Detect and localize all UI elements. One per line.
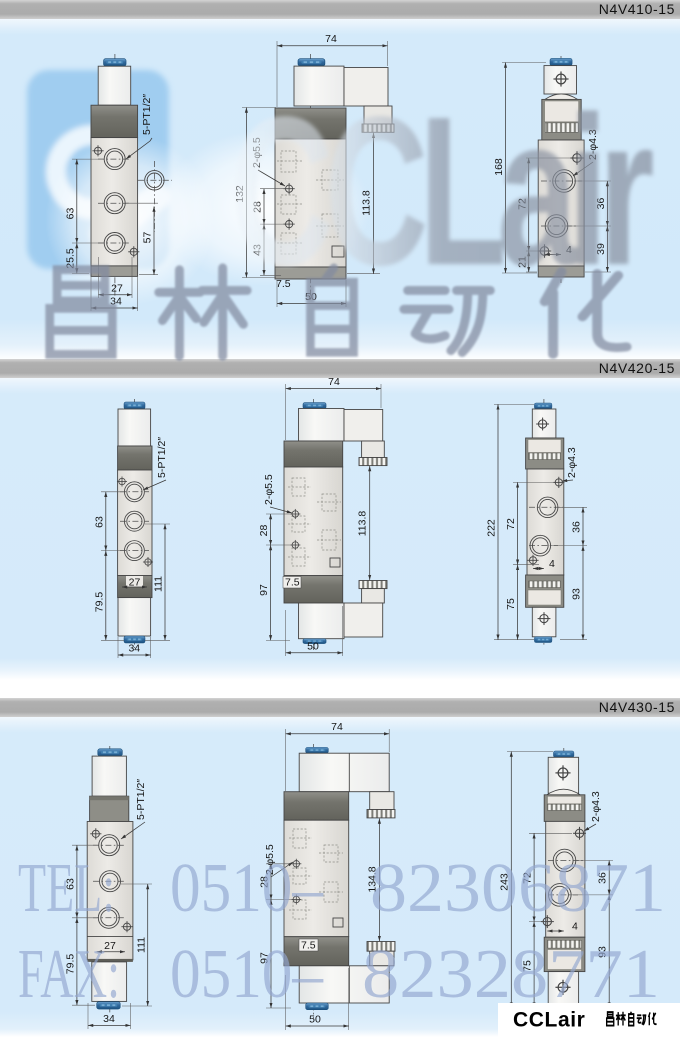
svg-text:74: 74 [331,721,343,733]
svg-text:74: 74 [325,33,337,45]
svg-text:93: 93 [571,588,583,600]
svg-text:72: 72 [505,518,517,530]
svg-text:34: 34 [103,1013,115,1025]
svg-text:111: 111 [135,937,147,953]
svg-text:50: 50 [309,1014,321,1026]
svg-text:63: 63 [94,516,106,528]
svg-text:7.5: 7.5 [285,577,300,589]
svg-text:0510–: 0510– [170,850,324,927]
svg-text:57: 57 [142,232,154,244]
svg-text:2-φ4.3: 2-φ4.3 [590,791,602,822]
svg-text:5-PT1/2″: 5-PT1/2″ [141,94,153,135]
svg-text:34: 34 [128,643,140,655]
svg-text:0510–: 0510– [170,936,324,1013]
svg-text:50: 50 [307,641,319,653]
svg-text:4: 4 [549,558,555,570]
svg-text:222: 222 [486,519,498,537]
svg-text:CCLair: CCLair [230,72,653,309]
svg-text:27: 27 [111,283,123,295]
svg-text:82306871: 82306871 [370,850,666,927]
svg-text:CCLair: CCLair [513,1009,585,1032]
svg-text:27: 27 [129,577,141,589]
svg-text:82328771: 82328771 [362,936,660,1013]
svg-text:2-φ4.3: 2-φ4.3 [566,447,578,478]
svg-text:74: 74 [328,376,340,388]
svg-text:5-PT1/2″: 5-PT1/2″ [135,779,147,820]
svg-text:FAX:: FAX: [18,936,120,1013]
svg-text:113.8: 113.8 [357,511,369,537]
svg-text:97: 97 [258,584,270,596]
svg-text:75: 75 [505,598,517,610]
svg-text:36: 36 [571,521,583,533]
svg-text:63: 63 [65,208,77,220]
svg-text:111: 111 [153,576,165,592]
svg-text:79.5: 79.5 [94,592,106,613]
svg-text:5-PT1/2″: 5-PT1/2″ [156,437,168,478]
svg-text:28: 28 [258,525,270,537]
svg-text:2-φ5.5: 2-φ5.5 [263,474,275,505]
svg-text:TEL:: TEL: [18,850,115,927]
